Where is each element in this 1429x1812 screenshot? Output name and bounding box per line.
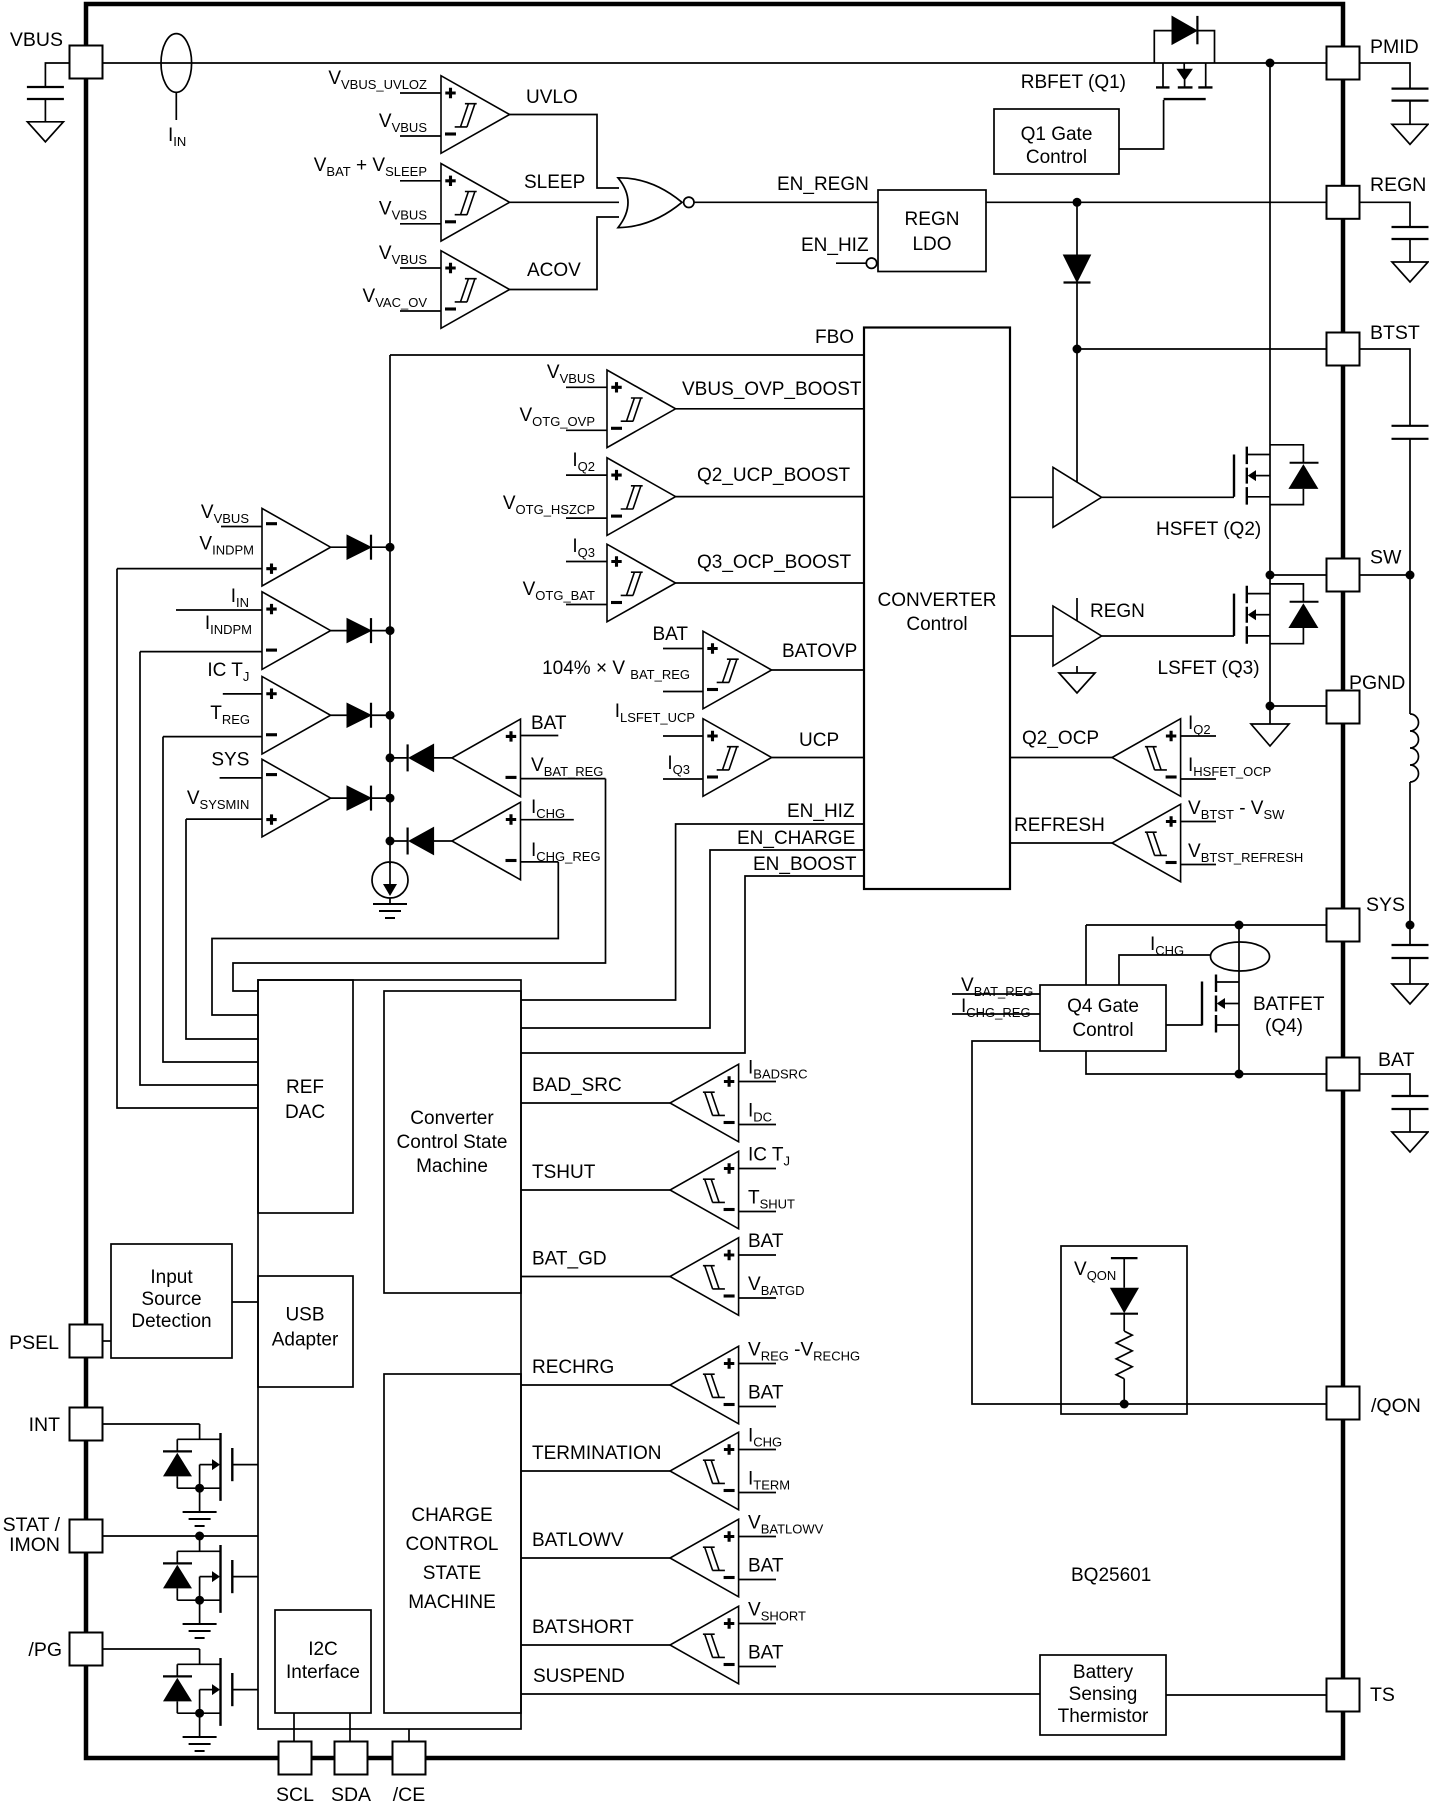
svg-text:BAT_GD: BAT_GD [532,1249,607,1270]
svg-text:CHARGE: CHARGE [411,1505,492,1526]
svg-text:/PG: /PG [28,1639,62,1661]
svg-text:BAT: BAT [748,1231,784,1252]
svg-text:STATE: STATE [423,1563,481,1584]
svg-text:SYS: SYS [211,750,249,771]
svg-text:BAT: BAT [748,1556,784,1577]
svg-text:BATFET: BATFET [1253,994,1325,1015]
svg-text:CONVERTER: CONVERTER [878,590,997,611]
svg-text:BAD_SRC: BAD_SRC [532,1075,622,1096]
svg-text:Machine: Machine [416,1156,488,1177]
svg-text:Detection: Detection [131,1311,211,1332]
svg-text:BATLOWV: BATLOWV [532,1530,624,1551]
svg-text:BAT: BAT [1378,1049,1415,1071]
svg-text:USB: USB [285,1305,324,1326]
svg-text:Q1 Gate: Q1 Gate [1021,124,1093,145]
svg-text:DAC: DAC [285,1102,325,1123]
svg-text:Q2_OCP: Q2_OCP [1022,728,1099,749]
svg-text:INT: INT [29,1414,61,1436]
svg-text:I2C: I2C [308,1639,338,1660]
svg-text:REF: REF [286,1077,324,1098]
svg-text:Control: Control [906,614,967,635]
svg-text:EN_CHARGE: EN_CHARGE [737,828,855,849]
svg-text:PSEL: PSEL [9,1332,59,1354]
svg-text:Sensing: Sensing [1069,1684,1138,1705]
svg-text:BATSHORT: BATSHORT [532,1617,634,1638]
svg-text:/QON: /QON [1371,1395,1421,1417]
svg-text:REGN: REGN [1090,601,1145,622]
svg-text:IMON: IMON [9,1534,60,1556]
svg-text:UCP: UCP [799,730,839,751]
svg-text:PMID: PMID [1370,36,1419,58]
svg-text:BAT: BAT [748,1383,784,1404]
svg-text:BAT: BAT [748,1643,784,1664]
svg-text:BAT: BAT [652,624,688,645]
svg-text:Converter: Converter [410,1108,494,1129]
svg-text:PGND: PGND [1349,672,1405,694]
svg-text:VBUS: VBUS [10,29,63,51]
svg-text:HSFET (Q2): HSFET (Q2) [1156,519,1261,540]
svg-text:SYS: SYS [1366,894,1405,916]
svg-text:Adapter: Adapter [272,1330,339,1351]
svg-text:SLEEP: SLEEP [524,172,585,193]
svg-text:BQ25601: BQ25601 [1071,1565,1151,1586]
svg-text:BATOVP: BATOVP [782,641,857,662]
svg-text:BAT: BAT [531,713,567,734]
svg-text:Interface: Interface [286,1662,360,1683]
svg-text:(Q4): (Q4) [1265,1016,1303,1037]
svg-text:Battery: Battery [1073,1662,1134,1683]
svg-text:CONTROL: CONTROL [406,1534,499,1555]
svg-text:STAT /: STAT / [3,1514,61,1536]
svg-text:Q2_UCP_BOOST: Q2_UCP_BOOST [697,465,850,486]
svg-text:ACOV: ACOV [527,260,581,281]
svg-text:Control: Control [1026,147,1087,168]
svg-text:RECHRG: RECHRG [532,1357,614,1378]
svg-text:EN_BOOST: EN_BOOST [753,854,857,875]
svg-text:UVLO: UVLO [526,87,578,108]
svg-text:TERMINATION: TERMINATION [532,1443,661,1464]
svg-text:SDA: SDA [331,1784,371,1806]
svg-text:BTST: BTST [1370,322,1420,344]
svg-text:Q4 Gate: Q4 Gate [1067,996,1139,1017]
svg-text:Control: Control [1072,1020,1133,1041]
svg-text:REGN: REGN [1370,174,1426,196]
svg-text:REGN: REGN [905,209,960,230]
svg-text:Input: Input [150,1267,193,1288]
svg-text:/CE: /CE [393,1784,426,1806]
svg-text:Q3_OCP_BOOST: Q3_OCP_BOOST [697,552,852,573]
svg-text:MACHINE: MACHINE [408,1592,496,1613]
svg-text:RBFET (Q1): RBFET (Q1) [1021,72,1126,93]
svg-text:Thermistor: Thermistor [1058,1706,1149,1727]
svg-text:Source: Source [141,1289,201,1310]
svg-text:LSFET (Q3): LSFET (Q3) [1158,658,1260,679]
svg-text:Control State: Control State [397,1132,508,1153]
svg-text:SUSPEND: SUSPEND [533,1666,625,1687]
svg-text:SCL: SCL [276,1784,314,1806]
svg-text:REFRESH: REFRESH [1014,815,1105,836]
svg-text:EN_HIZ: EN_HIZ [787,801,855,822]
svg-text:TSHUT: TSHUT [532,1162,596,1183]
svg-text:LDO: LDO [912,234,951,255]
svg-text:EN_REGN: EN_REGN [777,174,869,195]
svg-text:FBO: FBO [815,327,854,348]
svg-text:TS: TS [1370,1684,1395,1706]
svg-text:VBUS_OVP_BOOST: VBUS_OVP_BOOST [682,379,862,400]
svg-text:EN_HIZ: EN_HIZ [801,235,869,256]
svg-text:SW: SW [1370,547,1402,569]
